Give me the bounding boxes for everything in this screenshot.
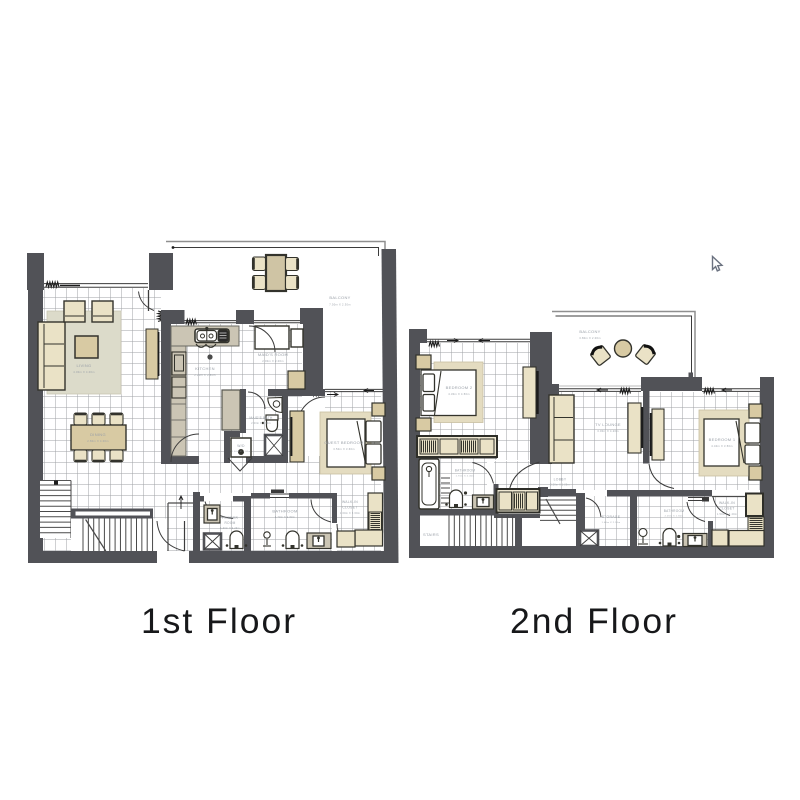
svg-text:1.50m X 2.40m: 1.50m X 2.40m (717, 513, 737, 516)
svg-text:1.70m X 2.80m: 1.70m X 2.80m (275, 516, 295, 519)
svg-text:BATHROOM: BATHROOM (272, 509, 297, 514)
svg-text:CLOSET: CLOSET (342, 506, 357, 510)
svg-text:BALCONY: BALCONY (579, 329, 600, 334)
svg-text:MAID'S BATH: MAID'S BATH (249, 416, 273, 420)
svg-text:MAID'S ROOM: MAID'S ROOM (258, 352, 288, 357)
svg-text:1.40m X 2.10m: 1.40m X 2.10m (602, 522, 621, 524)
svg-text:2.00m X 2.00m: 2.00m X 2.00m (251, 423, 270, 425)
svg-text:WALK-IN: WALK-IN (719, 501, 735, 505)
svg-text:7.50m X 2.30m: 7.50m X 2.30m (329, 303, 351, 307)
svg-text:ROOM: ROOM (224, 521, 235, 525)
svg-text:WALK-IN: WALK-IN (342, 500, 358, 504)
svg-text:4.00m X 4.00m: 4.00m X 4.00m (73, 370, 95, 374)
svg-text:STAIRS: STAIRS (423, 532, 439, 537)
svg-text:2.00m X 1.60m: 2.00m X 1.60m (665, 516, 684, 518)
svg-text:LIVING: LIVING (77, 363, 92, 368)
svg-text:3.80m X 2.00m: 3.80m X 2.00m (579, 336, 601, 340)
svg-text:KITCHEN: KITCHEN (195, 366, 215, 371)
svg-text:1.70m X 2.40m: 1.70m X 2.40m (456, 476, 475, 478)
svg-text:3.50m X 1.20m: 3.50m X 1.20m (550, 485, 569, 487)
svg-text:3.00m X 4.20m: 3.00m X 4.20m (597, 429, 619, 433)
svg-text:CLOSET: CLOSET (719, 507, 734, 511)
svg-text:3.50m X 3.60m: 3.50m X 3.60m (333, 447, 355, 451)
svg-text:LOBBY: LOBBY (554, 478, 567, 482)
svg-text:STORAGE: STORAGE (602, 515, 621, 519)
svg-text:DINING: DINING (90, 432, 106, 437)
svg-text:1st Floor: 1st Floor (141, 601, 297, 641)
svg-text:TV LOUNGE: TV LOUNGE (595, 422, 621, 427)
svg-text:2.20m X 3.80m: 2.20m X 3.80m (194, 373, 216, 377)
svg-text:2.80m X 4.00m: 2.80m X 4.00m (87, 439, 109, 443)
svg-text:BATHROOM: BATHROOM (455, 469, 476, 473)
svg-text:1.30m X 2.20m: 1.30m X 2.20m (220, 528, 239, 530)
svg-text:BEDROOM 1: BEDROOM 1 (709, 437, 736, 442)
svg-text:1.00m X 1.00m: 1.00m X 1.00m (232, 451, 251, 453)
svg-text:BATHROOM: BATHROOM (664, 509, 685, 513)
svg-text:BEDROOM 2: BEDROOM 2 (446, 385, 473, 390)
svg-text:4.40m X 3.50m: 4.40m X 3.50m (711, 444, 733, 448)
svg-text:1.60m X 2.60m: 1.60m X 2.60m (340, 512, 360, 515)
svg-text:2.00m X 3.00m: 2.00m X 3.00m (262, 359, 284, 363)
svg-text:GUEST BEDROOM: GUEST BEDROOM (324, 440, 363, 445)
svg-text:W/D: W/D (237, 444, 245, 448)
svg-text:BALCONY: BALCONY (329, 295, 350, 300)
svg-text:POWDER: POWDER (222, 516, 239, 520)
svg-text:4.30m X 4.50m: 4.30m X 4.50m (448, 392, 470, 396)
svg-text:2nd Floor: 2nd Floor (510, 601, 678, 641)
